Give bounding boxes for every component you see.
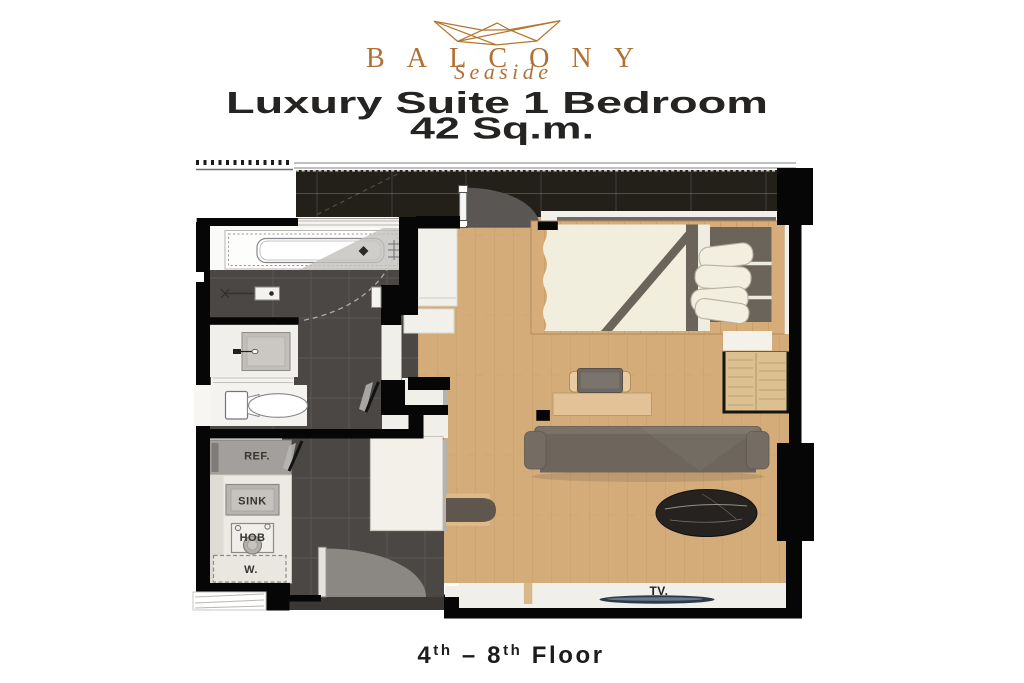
svg-text:SINK: SINK [238,496,267,508]
svg-text:42 Sq.m.: 42 Sq.m. [410,111,594,146]
svg-text:REF.: REF. [244,451,270,463]
svg-text:HOB: HOB [240,532,266,544]
svg-text:W.: W. [244,564,258,576]
